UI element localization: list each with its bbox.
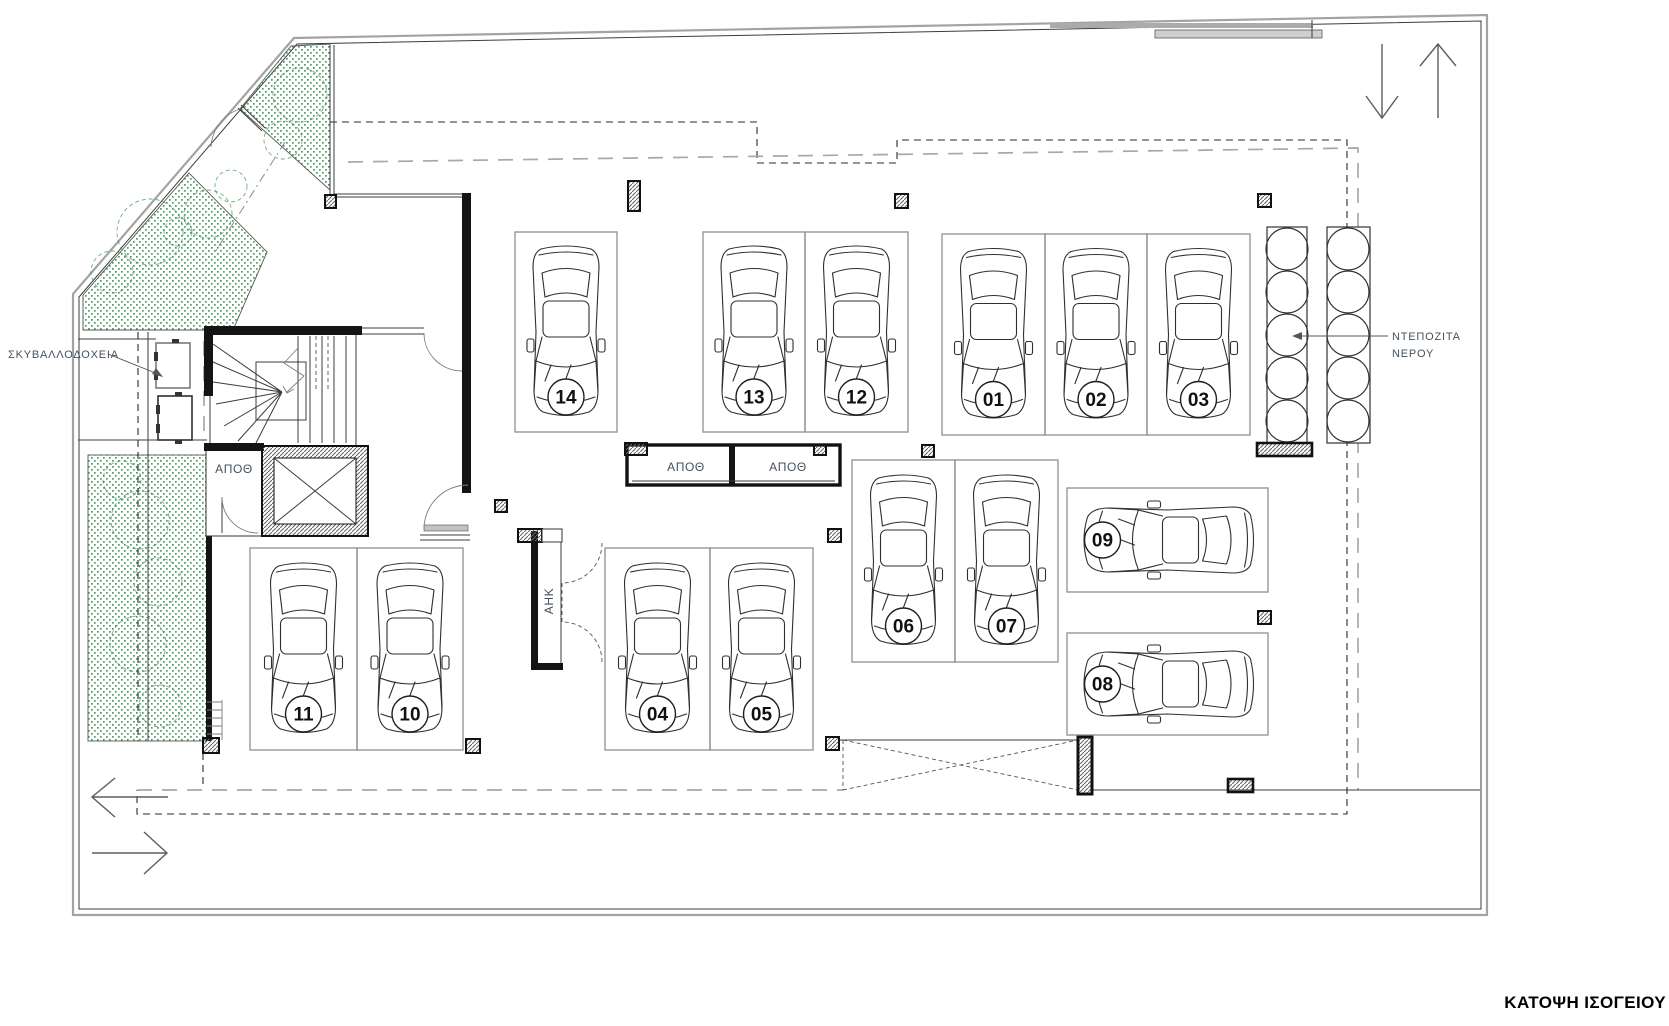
parking-spot-number: 05 — [751, 705, 773, 726]
parking-spot-number: 14 — [555, 388, 577, 409]
floor-plan-canvas: 0102030405060708091011121314 ΣΚΥΒΑΛΛΟΔΟΧ… — [0, 0, 1669, 1026]
parking-stall-06: 06 — [852, 460, 955, 662]
door-swing-arc — [424, 333, 462, 371]
parking-spot-number: 07 — [996, 617, 1017, 638]
storage-label: ΑΠΟΘ — [769, 460, 807, 474]
parking-stall-11: 11 — [250, 548, 357, 750]
storage-room — [206, 446, 262, 536]
arrow-up-icon — [1420, 44, 1456, 118]
parking-stall-10: 10 — [357, 548, 463, 750]
parking-stall-08: 08 — [1067, 633, 1268, 735]
drawing-title: ΚΑΤΟΨΗ ΙΣΟΓΕΙΟΥ — [1504, 993, 1666, 1012]
garbage-bin — [156, 343, 190, 388]
electricity-closet — [518, 529, 602, 670]
parking-spot-number: 02 — [1085, 390, 1106, 411]
parking-stall-13: 13 — [703, 232, 805, 432]
arrow-down-icon — [1366, 44, 1398, 118]
annotations: ΣΚΥΒΑΛΛΟΔΟΧΕΙΑ ΑΠΟΘ ΑΠΟΘ ΑΠΟΘ ΑΗΚ ΝΤΕΠΟΖ… — [8, 331, 1666, 1012]
stair-direction-arrow — [283, 348, 304, 393]
water-tanks-label-line2: ΝΕΡΟΥ — [1392, 348, 1434, 360]
closet-door-arcs — [562, 543, 602, 662]
parking-spot-number: 06 — [893, 617, 914, 638]
parking-spot-number: 03 — [1188, 390, 1209, 411]
parking-stall-05: 05 — [710, 548, 813, 750]
storage-label: ΑΠΟΘ — [667, 460, 705, 474]
parking-spot-number: 11 — [293, 705, 314, 726]
storage-strip — [625, 443, 840, 485]
arrow-right-icon — [92, 832, 167, 874]
elevator-core — [204, 443, 368, 536]
kerb-bar — [1155, 30, 1322, 38]
ramp-wall — [1078, 737, 1092, 794]
floor-plan-drawing: 0102030405060708091011121314 ΣΚΥΒΑΛΛΟΔΟΧ… — [0, 0, 1669, 1026]
parking-stall-02: 02 — [1045, 234, 1147, 435]
storage-label: ΑΠΟΘ — [215, 462, 253, 476]
parking-spot-number: 12 — [846, 388, 867, 409]
door-swing-arc — [424, 485, 468, 529]
parking-spot-number: 09 — [1092, 531, 1113, 552]
parking-spot-number: 04 — [647, 705, 669, 726]
building-walls — [204, 45, 471, 741]
parking-stall-14: 14 — [515, 232, 617, 432]
parking-stall-03: 03 — [1147, 234, 1250, 435]
parking-spot-number: 08 — [1092, 675, 1113, 696]
entrance-door — [420, 485, 470, 540]
electricity-label: ΑΗΚ — [542, 588, 556, 614]
water-tanks-label-line1: ΝΤΕΠΟΖΙΤΑ — [1392, 331, 1461, 343]
arrow-left-icon — [92, 778, 168, 817]
parking-stall-12: 12 — [805, 232, 908, 432]
parking-stall-07: 07 — [955, 460, 1058, 662]
garbage-bin — [158, 396, 192, 440]
water-tanks — [1257, 227, 1370, 456]
garbage-bins-label: ΣΚΥΒΑΛΛΟΔΟΧΕΙΑ — [8, 349, 119, 361]
ramp — [838, 737, 1253, 794]
parking-stall-04: 04 — [605, 548, 710, 750]
parking-stalls: 0102030405060708091011121314 — [250, 232, 1268, 750]
parking-spot-number: 01 — [983, 390, 1005, 411]
kerb-bar — [1050, 23, 1313, 28]
wall — [462, 193, 471, 493]
hatched-bar — [1257, 443, 1312, 456]
garbage-bins — [154, 339, 192, 444]
parking-stall-09: 09 — [1067, 488, 1268, 592]
parking-stall-01: 01 — [942, 234, 1045, 435]
staircase — [213, 336, 346, 443]
parking-spot-number: 10 — [399, 705, 420, 726]
hatched-bar — [1228, 779, 1253, 792]
door-leaf — [424, 525, 468, 531]
parking-spot-number: 13 — [743, 388, 764, 409]
